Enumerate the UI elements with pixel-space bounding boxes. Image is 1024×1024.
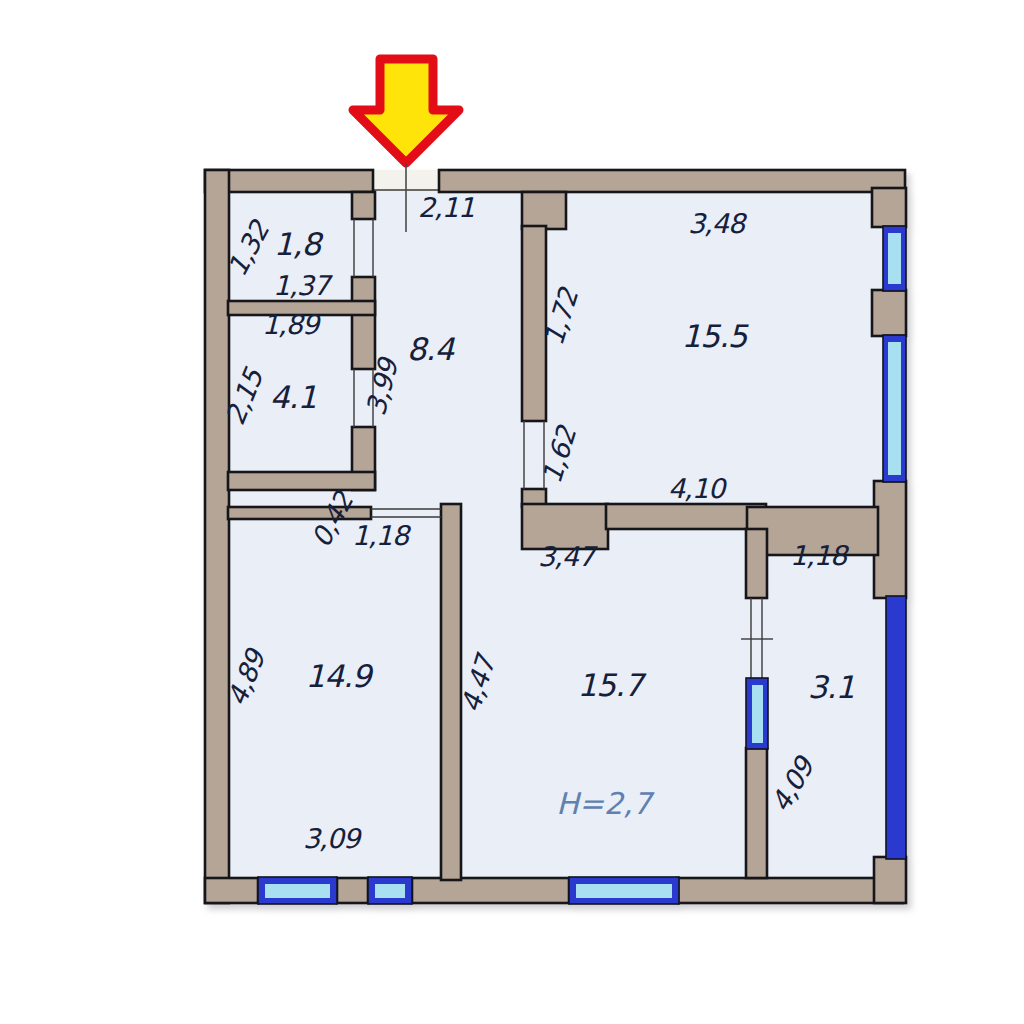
room-r155-area-label: 15.5 (681, 318, 748, 354)
dim-label-r149-bottom: 3,09 (303, 823, 362, 854)
wall-r149-r157 (441, 504, 461, 880)
wall-r157-balcony-upper (746, 529, 767, 598)
window-r157 (569, 877, 679, 904)
right-wall-pier-top (872, 188, 906, 227)
window-bedroom-1 (258, 877, 337, 904)
dim-label-r31-top: 1,18 (790, 540, 850, 571)
r41-bottom-wall (228, 472, 375, 490)
window-living-1 (883, 226, 906, 291)
room-r157-area-label: 15.7 (577, 667, 646, 703)
top-wall-right (439, 170, 905, 192)
dim-label-r157-top: 3,47 (538, 541, 598, 572)
wall-r155-r157-right (606, 504, 766, 529)
dim-label-r18-bottom: 1,37 (273, 270, 333, 301)
room-r31-area-label: 3.1 (808, 669, 854, 705)
storage-wall-top (352, 192, 375, 219)
window-living-2 (883, 335, 906, 482)
storage-wall-mid (352, 277, 375, 369)
bottom-wall-2 (337, 878, 368, 903)
bottom-wall-1 (205, 878, 258, 903)
window-balcony-side (746, 678, 768, 749)
window-bedroom-2 (368, 877, 412, 904)
bottom-wall-3 (412, 878, 569, 903)
dim-label-r155-top: 3,48 (688, 208, 748, 239)
right-wall-corner-bottom (874, 857, 906, 903)
balcony-glazing (886, 596, 906, 859)
wall-r157-balcony-lower (746, 748, 767, 878)
dim-label-r84-top: 2,11 (418, 192, 474, 223)
ceiling-height-label: H=2,7 (556, 786, 654, 821)
room-r84-area-label: 8.4 (407, 331, 456, 367)
floor-plan-canvas: 1,32 1,8 1,37 1,89 2,15 4.1 2,11 8.4 3,9… (0, 0, 1024, 1024)
bottom-wall-4 (678, 878, 903, 903)
dim-label-r155-bottom: 4,10 (668, 473, 728, 504)
hall-living-wall-stub (522, 192, 566, 229)
right-wall-pier-mid (872, 290, 906, 336)
room-r149-area-label: 14.9 (305, 658, 373, 694)
left-wall (205, 170, 229, 903)
room-r18-area-label: 1,8 (274, 226, 325, 262)
dim-label-r41-top: 1,89 (262, 309, 321, 340)
room-r41-area-label: 4.1 (270, 379, 316, 415)
dim-label-r149-door: 1,18 (352, 520, 412, 551)
entrance-arrow-icon (353, 59, 459, 163)
floor-plan-svg: 1,32 1,8 1,37 1,89 2,15 4.1 2,11 8.4 3,9… (0, 0, 1024, 1024)
